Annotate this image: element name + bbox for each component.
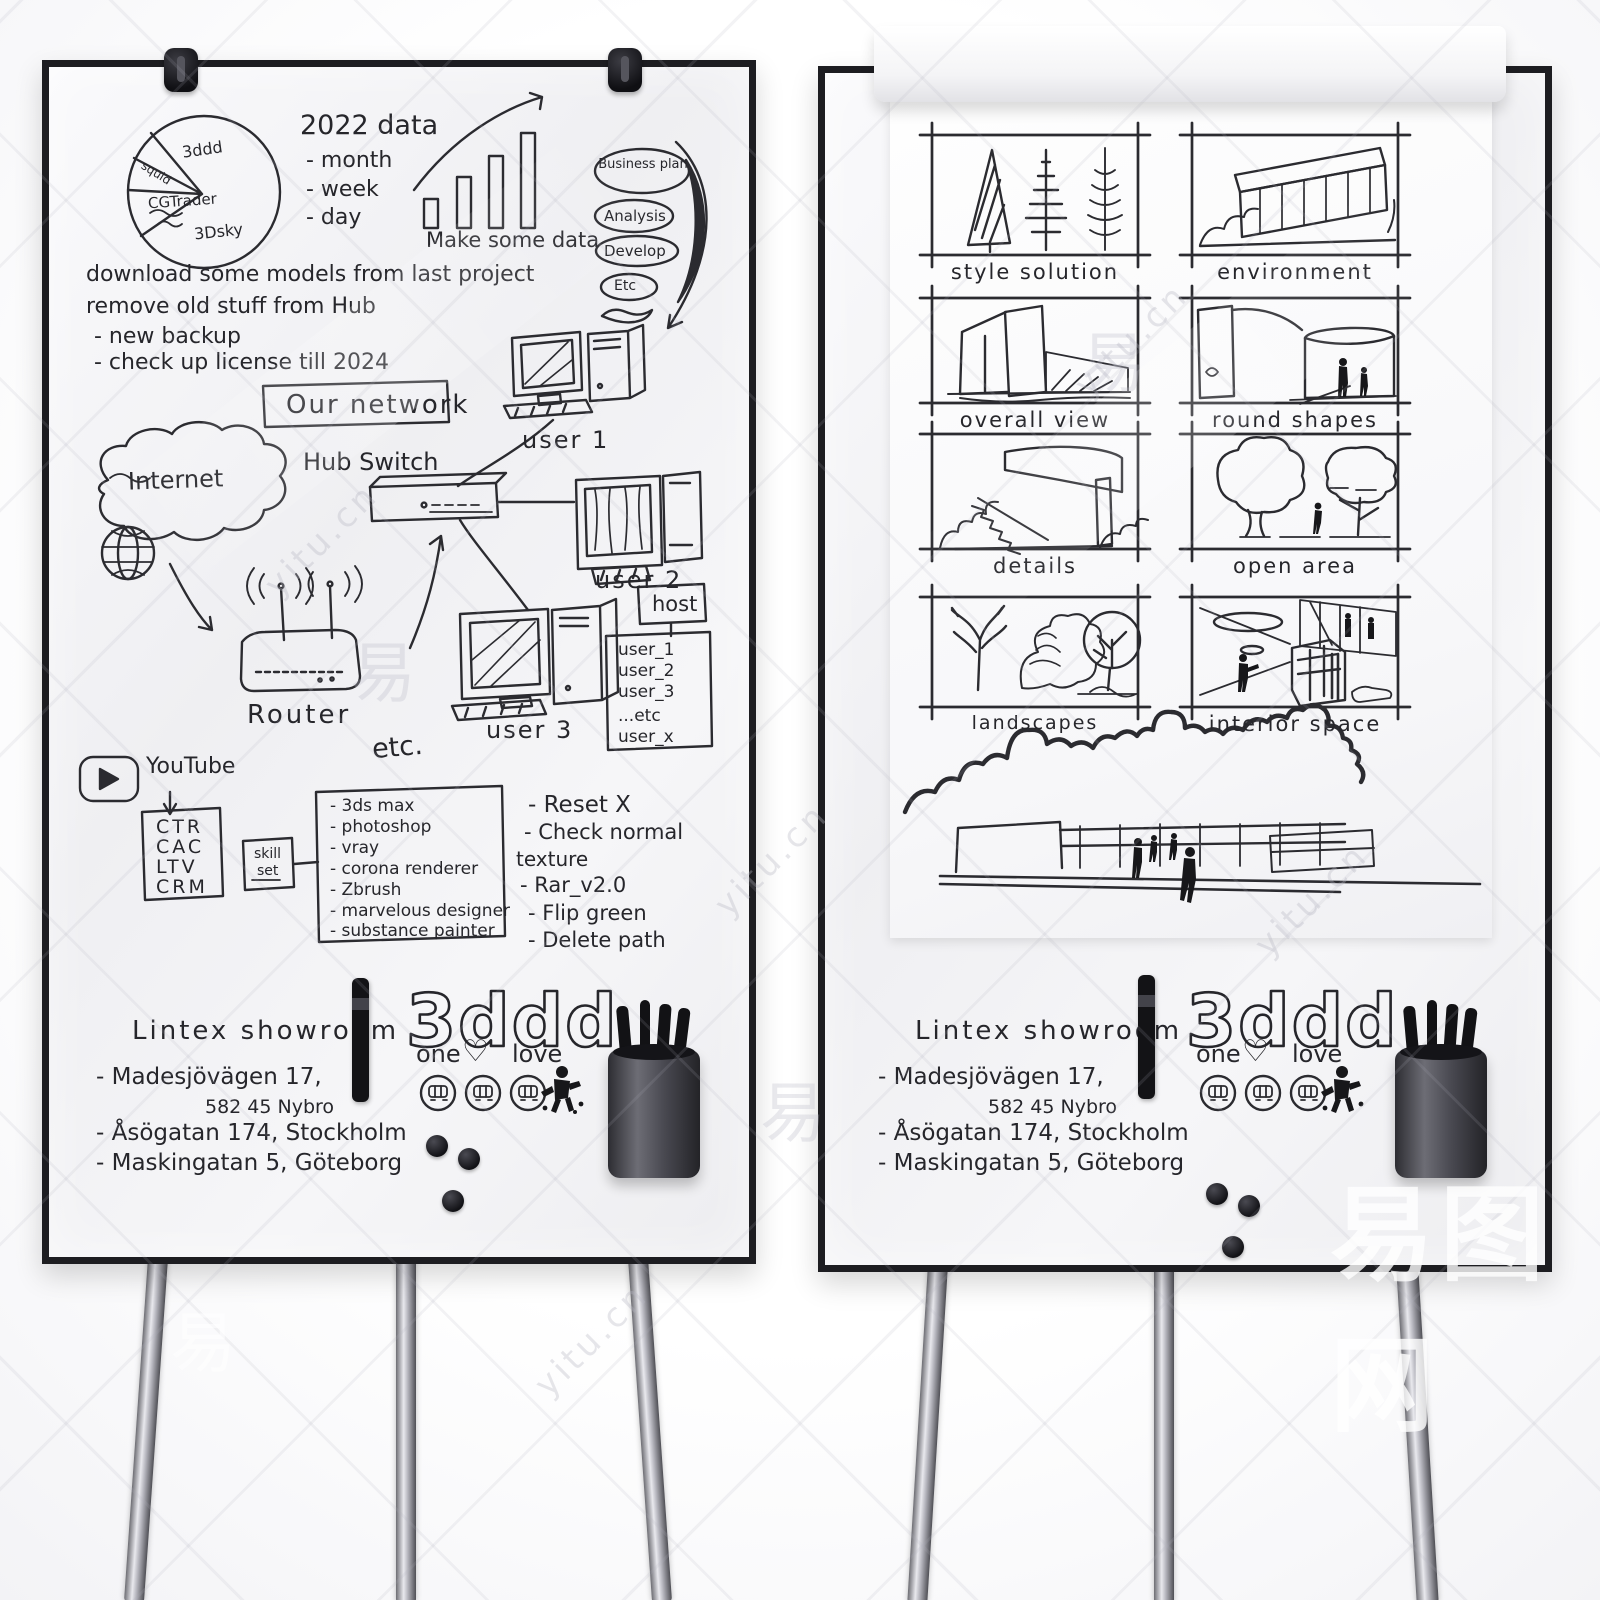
left-showroom-addr3: - Maskingatan 5, Göteborg <box>96 1150 402 1176</box>
software-7: - substance painter <box>330 921 495 941</box>
user1-computer-sketch <box>458 325 645 486</box>
funnel-label-1: Business plan <box>598 158 688 172</box>
metric-2: CAC <box>156 836 204 858</box>
todo-6: - Delete path <box>528 928 666 952</box>
panel3-building-sketch <box>948 306 1130 402</box>
left-showroom-addr1b: 582 45 Nybro <box>205 1096 334 1118</box>
left-logo-love: love <box>512 1040 562 1068</box>
user1-label: user 1 <box>522 426 609 454</box>
panel7-landscape-sketch <box>952 606 1140 697</box>
left-logo-one: one <box>416 1040 461 1068</box>
right-showroom-addr1: - Madesjövägen 17, <box>878 1064 1104 1090</box>
panel-label-round-shapes: round shapes <box>1192 408 1398 432</box>
todo-2: - Check normal <box>524 820 683 844</box>
router-label: Router <box>247 700 351 730</box>
data2022-day: - day <box>306 205 361 230</box>
left-pen-cup <box>608 1050 700 1178</box>
software-6: - marvelous designer <box>330 901 510 921</box>
right-logo-heart: ♡ <box>1242 1034 1269 1069</box>
panel2-building-sketch <box>1200 148 1395 246</box>
user2-label: user 2 <box>595 566 682 594</box>
panel-label-landscapes: landscapes <box>932 712 1138 734</box>
network-title: Our network <box>286 390 469 420</box>
etc-title: etc. <box>371 730 424 765</box>
todo-3: texture <box>516 847 588 871</box>
panel-label-open-area: open area <box>1192 554 1398 578</box>
host-item-4: ...etc <box>618 706 661 726</box>
hub-label: Hub Switch <box>303 448 438 476</box>
right-magnet-2 <box>1238 1195 1260 1217</box>
funnel-label-2: Analysis <box>604 207 666 225</box>
note-line-3: - new backup <box>94 324 241 349</box>
panel-label-environment: environment <box>1192 260 1398 284</box>
software-5: - Zbrush <box>330 880 401 900</box>
skill-line-2: set <box>257 863 278 879</box>
right-showroom-addr2: - Åsögatan 174, Stockholm <box>878 1120 1189 1146</box>
note-line-2: remove old stuff from Hub <box>86 294 376 319</box>
panel8-interior-sketch <box>1200 600 1396 706</box>
note-line-1: download some models from last project <box>86 262 534 287</box>
note-line-4: - check up license till 2024 <box>94 350 389 375</box>
panel-label-details: details <box>932 554 1138 578</box>
panel1-trees-sketch <box>968 148 1122 252</box>
user3-label: user 3 <box>486 716 573 744</box>
software-2: - photoshop <box>330 817 431 837</box>
panel4-round-sketch <box>1198 306 1396 404</box>
router-sketch <box>241 536 443 691</box>
youtube-label: YouTube <box>146 754 235 779</box>
user3-computer-sketch <box>452 520 618 720</box>
software-3: - vray <box>330 838 379 858</box>
right-showroom-addr3: - Maskingatan 5, Göteborg <box>878 1150 1184 1176</box>
panel6-trees-sketch <box>1217 437 1395 537</box>
todo-5: - Flip green <box>528 901 647 925</box>
panel-label-overall-view: overall view <box>932 408 1138 432</box>
software-1: - 3ds max <box>330 796 414 816</box>
hub-switch-sketch <box>370 473 574 521</box>
left-showroom-addr1: - Madesjövägen 17, <box>96 1064 322 1090</box>
host-label: host <box>652 592 697 616</box>
metric-4: CRM <box>156 876 208 898</box>
left-magnet-2 <box>458 1148 480 1170</box>
right-magnet-1 <box>1206 1183 1228 1205</box>
panel-label-interior-space: interior space <box>1192 712 1398 736</box>
internet-label: Internet <box>128 464 224 495</box>
scene: 3ddd <box>0 0 1600 1600</box>
right-board-marker-pen <box>1138 975 1155 1099</box>
skill-line-1: skill <box>254 846 281 862</box>
funnel-label-4: Etc <box>614 278 636 294</box>
host-item-1: user_1 <box>618 640 674 660</box>
data2022-week: - week <box>306 177 379 202</box>
host-item-2: user_2 <box>618 661 674 681</box>
software-4: - corona renderer <box>330 859 478 879</box>
right-showroom-addr1b: 582 45 Nybro <box>988 1096 1117 1118</box>
left-showroom-addr2: - Åsögatan 174, Stockholm <box>96 1120 407 1146</box>
host-item-3: user_3 <box>618 682 674 702</box>
metric-1: CTR <box>156 816 203 838</box>
left-pen-cup-opening <box>613 1044 695 1060</box>
right-magnet-3 <box>1222 1236 1244 1258</box>
data2022-title: 2022 data <box>300 110 438 141</box>
sketch-layer: 3ddd <box>0 0 1600 1600</box>
data2022-month: - month <box>306 148 392 173</box>
funnel-label-3: Develop <box>604 242 666 260</box>
right-pen-cup-opening <box>1400 1044 1482 1060</box>
left-magnet-1 <box>426 1135 448 1157</box>
metric-3: LTV <box>156 856 198 878</box>
host-item-5: user_x <box>618 727 674 747</box>
internet-cloud-sketch <box>99 422 286 630</box>
right-logo-love: love <box>1292 1040 1342 1068</box>
todo-4: - Rar_v2.0 <box>520 873 626 897</box>
bar-chart-caption: Make some data <box>426 228 599 252</box>
panel5-details-sketch <box>940 447 1148 554</box>
panel-label-style-solution: style solution <box>932 260 1138 284</box>
todo-1: - Reset X <box>528 792 631 818</box>
right-logo-one: one <box>1196 1040 1241 1068</box>
left-logo-heart: ♡ <box>462 1034 489 1069</box>
left-magnet-3 <box>442 1190 464 1212</box>
right-pen-cup <box>1395 1050 1487 1178</box>
left-board-marker-pen <box>352 978 369 1102</box>
